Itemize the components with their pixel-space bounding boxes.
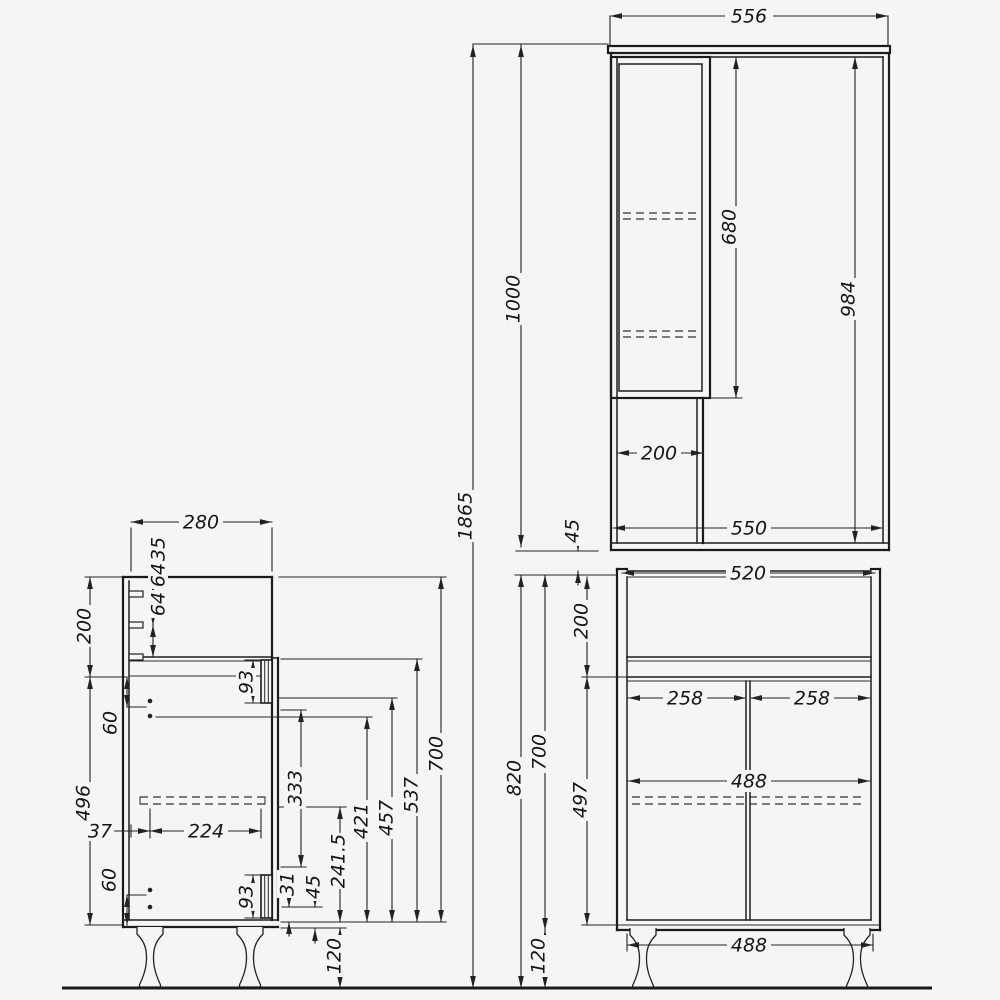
svg-text:31: 31	[277, 872, 299, 896]
svg-text:280: 280	[183, 512, 219, 534]
svg-text:200: 200	[571, 603, 593, 639]
svg-text:37: 37	[88, 821, 112, 843]
svg-text:488: 488	[731, 771, 767, 793]
svg-text:45: 45	[562, 519, 584, 543]
svg-text:488: 488	[731, 935, 767, 957]
svg-text:93: 93	[236, 885, 258, 909]
svg-text:520: 520	[730, 563, 766, 585]
svg-text:224: 224	[188, 821, 224, 843]
dim-label-upper-width: 556	[725, 5, 773, 28]
svg-text:93: 93	[236, 670, 258, 694]
svg-text:537: 537	[401, 777, 423, 813]
svg-text:60: 60	[100, 711, 122, 735]
svg-text:1000: 1000	[503, 275, 525, 323]
pin-hole	[148, 905, 153, 910]
svg-text:241.5: 241.5	[328, 834, 350, 888]
svg-text:1865: 1865	[455, 492, 477, 540]
pin-hole	[148, 888, 153, 893]
svg-text:333: 333	[285, 770, 307, 806]
svg-text:700: 700	[529, 734, 551, 770]
svg-text:64: 64	[148, 592, 170, 616]
svg-text:820: 820	[504, 760, 526, 796]
shelf-pin-2	[129, 622, 143, 628]
shelf-pin-3	[129, 654, 143, 660]
pin-hole	[148, 699, 153, 704]
pin-hole	[148, 714, 153, 719]
svg-text:700: 700	[426, 736, 448, 772]
svg-text:497: 497	[570, 782, 592, 818]
svg-text:421: 421	[351, 803, 373, 839]
svg-text:556: 556	[731, 6, 767, 28]
svg-text:35: 35	[148, 537, 170, 561]
dim-label-upper-height: 1000	[502, 273, 525, 325]
svg-text:680: 680	[719, 209, 741, 245]
svg-text:60: 60	[99, 868, 121, 892]
technical-drawing: 556 1000 984 680 200 550	[0, 0, 1000, 1000]
svg-text:64: 64	[148, 563, 170, 587]
svg-text:45: 45	[303, 875, 325, 899]
hinge-bottom	[261, 875, 272, 918]
svg-text:258: 258	[667, 688, 703, 710]
svg-text:457: 457	[376, 800, 398, 836]
svg-text:258: 258	[794, 688, 830, 710]
paper-background	[0, 0, 1000, 1000]
svg-text:120: 120	[528, 938, 550, 974]
svg-text:200: 200	[641, 443, 677, 465]
svg-text:200: 200	[74, 608, 96, 644]
svg-text:496: 496	[73, 785, 95, 821]
svg-text:120: 120	[324, 938, 346, 974]
hinge-top	[261, 660, 272, 703]
shelf-pin-1	[129, 591, 143, 597]
svg-text:984: 984	[838, 281, 860, 317]
svg-text:550: 550	[731, 518, 767, 540]
